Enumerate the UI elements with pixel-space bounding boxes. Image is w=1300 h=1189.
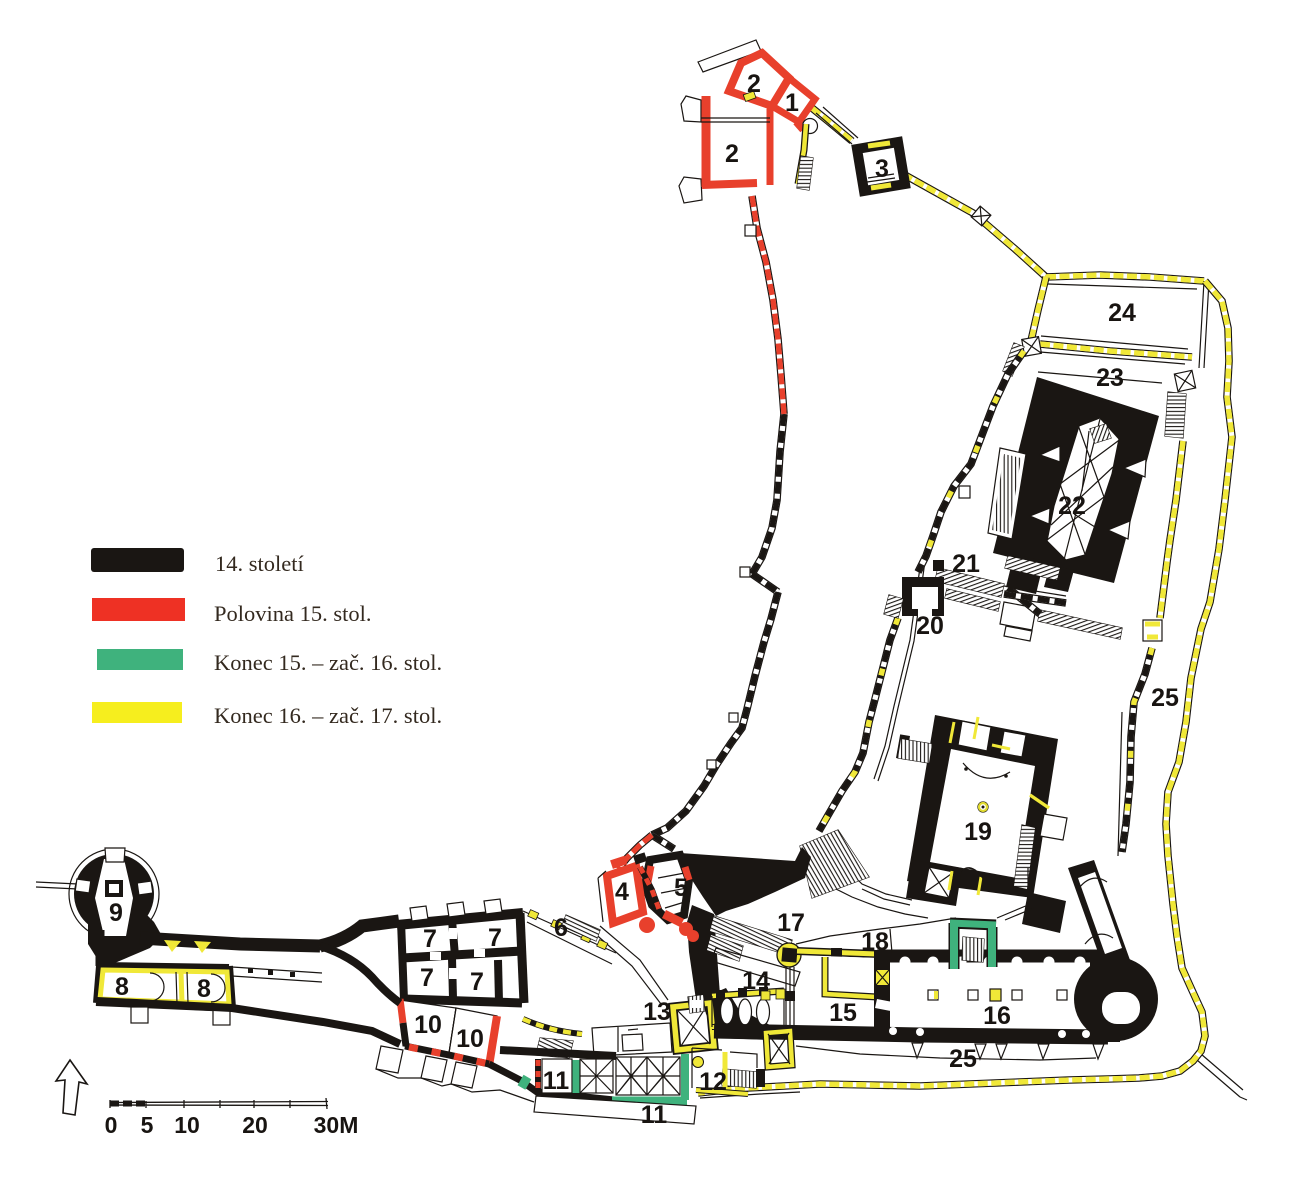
svg-text:18: 18 (861, 928, 889, 956)
svg-text:14. století: 14. století (215, 551, 304, 576)
svg-text:16: 16 (983, 1002, 1011, 1030)
svg-text:21: 21 (952, 550, 980, 578)
svg-text:10: 10 (414, 1011, 442, 1039)
svg-text:Polovina 15. stol.: Polovina 15. stol. (214, 601, 372, 626)
svg-text:4: 4 (615, 878, 629, 906)
svg-text:3: 3 (875, 155, 889, 183)
svg-text:6: 6 (554, 914, 568, 942)
svg-text:8: 8 (115, 973, 129, 1001)
svg-text:5: 5 (141, 1112, 154, 1138)
svg-text:7: 7 (488, 924, 502, 952)
svg-text:25: 25 (949, 1045, 977, 1073)
svg-text:2: 2 (747, 70, 761, 98)
svg-text:5: 5 (674, 874, 688, 902)
svg-text:9: 9 (109, 899, 123, 927)
svg-text:15: 15 (829, 999, 857, 1027)
svg-text:Konec 16. – zač. 17. stol.: Konec 16. – zač. 17. stol. (214, 703, 442, 728)
svg-text:7: 7 (420, 964, 434, 992)
svg-text:7: 7 (423, 925, 437, 953)
svg-text:23: 23 (1096, 364, 1124, 392)
svg-text:20: 20 (242, 1112, 268, 1138)
svg-text:8: 8 (197, 975, 211, 1003)
svg-text:17: 17 (777, 909, 805, 937)
svg-text:13: 13 (643, 998, 671, 1026)
svg-text:0: 0 (105, 1112, 118, 1138)
svg-text:14: 14 (742, 967, 770, 995)
svg-text:12: 12 (699, 1068, 727, 1096)
svg-text:11: 11 (543, 1067, 570, 1095)
svg-text:10: 10 (456, 1025, 484, 1053)
svg-text:10: 10 (174, 1112, 200, 1138)
svg-text:20: 20 (916, 612, 944, 640)
svg-text:7: 7 (470, 968, 484, 996)
svg-text:11: 11 (641, 1101, 668, 1129)
svg-text:25: 25 (1151, 684, 1179, 712)
svg-text:24: 24 (1108, 299, 1136, 327)
svg-text:22: 22 (1058, 492, 1086, 520)
svg-text:Konec 15. – zač. 16. stol.: Konec 15. – zač. 16. stol. (214, 650, 442, 675)
svg-text:2: 2 (725, 140, 739, 168)
svg-text:1: 1 (785, 89, 799, 117)
svg-text:30M: 30M (314, 1112, 359, 1138)
svg-text:19: 19 (964, 818, 992, 846)
